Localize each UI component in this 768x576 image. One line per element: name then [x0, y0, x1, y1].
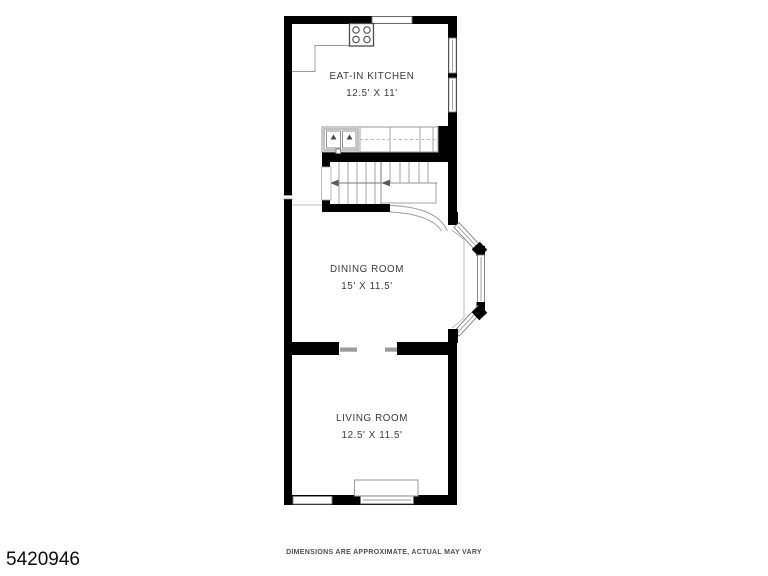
stair-door-opening: [322, 167, 332, 200]
living-room-left-window: [293, 496, 332, 504]
room-opening: [340, 348, 397, 352]
bay-sill-line: [452, 230, 464, 328]
disclaimer-text: DIMENSIONS ARE APPROXIMATE, ACTUAL MAY V…: [0, 549, 768, 556]
left-wall-break: [283, 196, 293, 199]
double-sink-icon: [324, 129, 358, 154]
floorplan-drawing: EAT-IN KITCHEN 12.5' X 11' DINING ROOM 1…: [0, 0, 768, 576]
kitchen-label: EAT-IN KITCHEN: [330, 71, 415, 82]
kitchen-top-window: [372, 17, 412, 24]
stair-arrow-icon: [382, 180, 391, 187]
living-room-label: LIVING ROOM: [336, 413, 408, 424]
under-stair-arch: [390, 206, 448, 232]
staircase: [322, 162, 438, 204]
kitchen-dimensions: 12.5' X 11': [346, 88, 398, 99]
dining-room-dimensions: 15' X 11.5': [341, 281, 393, 292]
stove-icon: [350, 24, 374, 47]
interior-walls: [284, 152, 457, 355]
dining-room-label: DINING ROOM: [330, 264, 404, 275]
faucet-mark: [336, 149, 341, 154]
box-bay-window: [355, 480, 419, 504]
bay-window: [448, 212, 487, 343]
living-room-dimensions: 12.5' X 11.5': [342, 430, 403, 441]
floorplan-page: EAT-IN KITCHEN 12.5' X 11' DINING ROOM 1…: [0, 0, 768, 576]
